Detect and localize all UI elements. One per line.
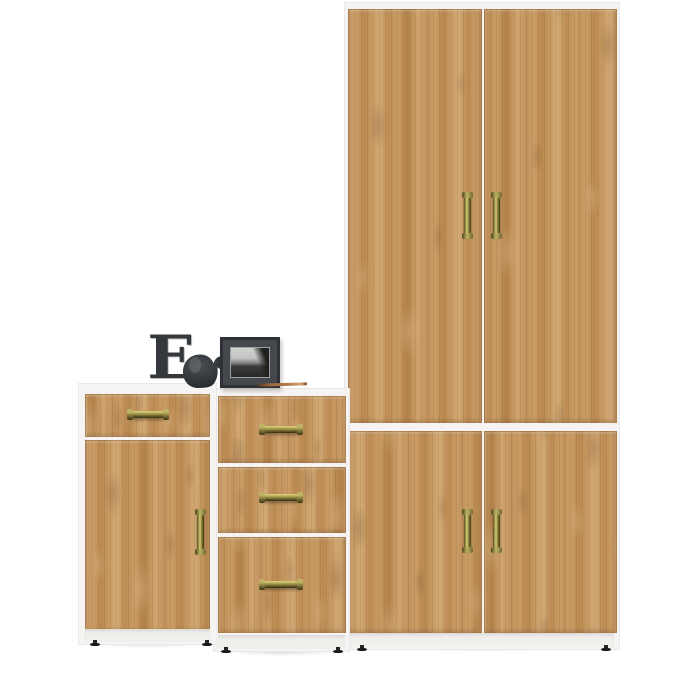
furniture-product-photo: E — [0, 0, 700, 675]
tall-wardrobe — [344, 2, 620, 650]
chest-drawer-3-handle — [261, 581, 301, 588]
wardrobe-lower-left-door — [348, 431, 482, 633]
chest-right-foot — [333, 650, 343, 653]
chest-base — [218, 635, 345, 649]
wardrobe-upper-left-door — [348, 9, 482, 423]
base-cabinet — [78, 383, 217, 645]
wardrobe-upper-right-handle — [493, 194, 500, 237]
cabinet-left-foot — [90, 643, 100, 646]
wardrobe-lower-right-handle — [493, 511, 500, 551]
wardrobe-base — [350, 633, 614, 647]
wardrobe-right-foot — [601, 648, 611, 651]
wardrobe-upper-right-door — [484, 9, 617, 423]
pencil — [258, 382, 307, 386]
photo-frame — [220, 337, 280, 388]
cabinet-door — [85, 440, 210, 632]
cabinet-drawer-handle — [129, 411, 167, 418]
cabinet-door-handle — [197, 511, 204, 553]
cabinet-right-foot — [202, 643, 212, 646]
chest-of-drawers — [213, 388, 350, 652]
wardrobe-lower-left-handle — [464, 511, 471, 551]
chest-left-foot — [221, 650, 231, 653]
chest-drawer-1-handle — [261, 426, 301, 433]
chest-drawer-2-handle — [261, 494, 301, 501]
wardrobe-left-foot — [357, 648, 367, 651]
cabinet-base — [85, 629, 210, 642]
wardrobe-upper-left-handle — [464, 194, 471, 237]
wardrobe-lower-right-door — [484, 431, 617, 633]
photo-seascape — [230, 347, 270, 378]
